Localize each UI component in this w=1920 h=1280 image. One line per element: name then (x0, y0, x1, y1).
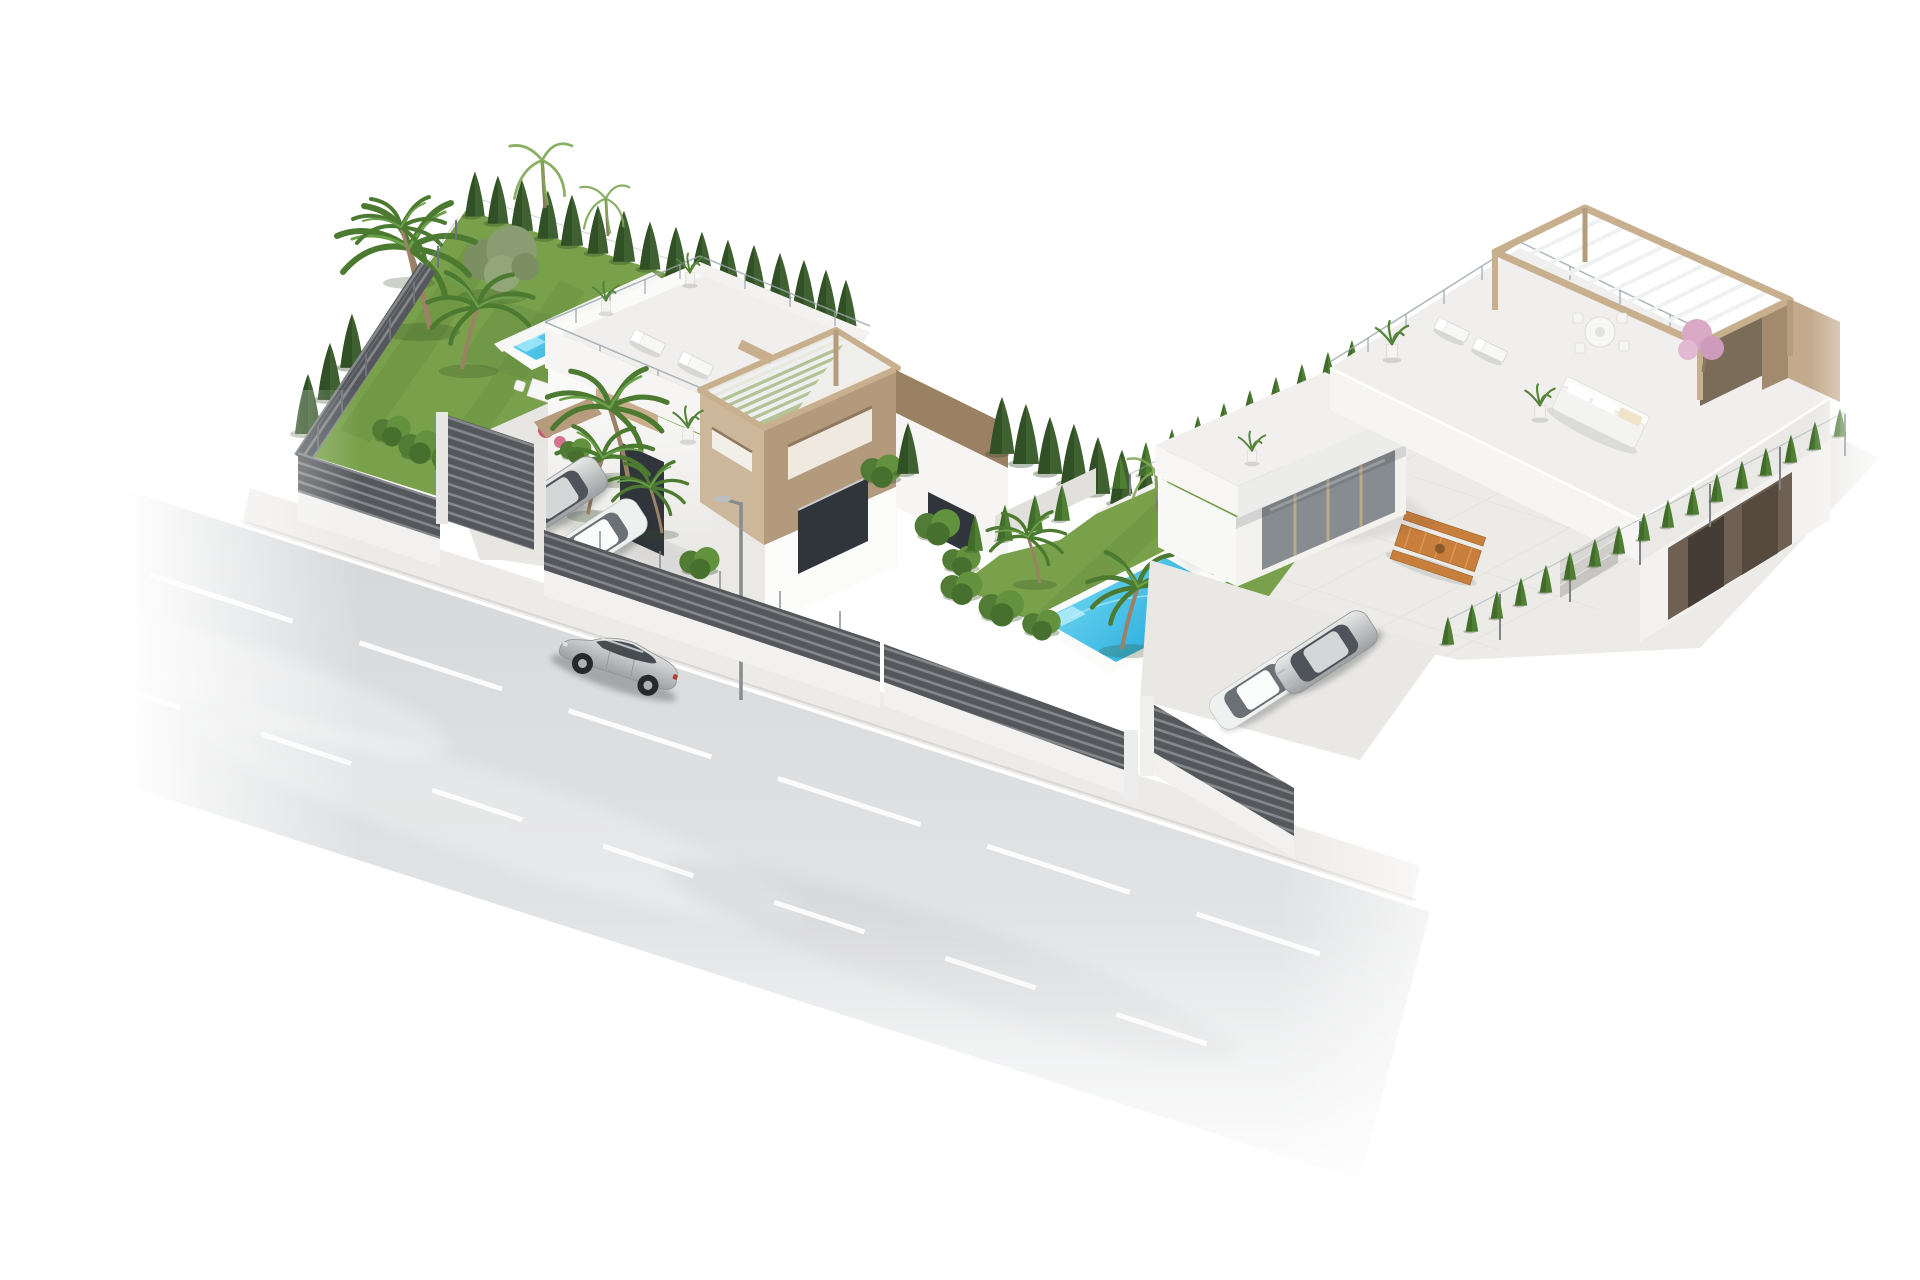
render-canvas (0, 0, 1920, 1280)
terrace-chair (1617, 313, 1627, 323)
terrace-chair (1619, 341, 1629, 351)
cypress-tree (1033, 417, 1062, 478)
cypress-tree (1008, 404, 1039, 468)
architectural-render (0, 0, 1920, 1280)
bottom-edge-fade (0, 920, 1520, 1280)
shrub (940, 571, 982, 605)
terrace-chair (1575, 343, 1585, 353)
lamp-head (715, 496, 731, 503)
gate-pillar (436, 412, 448, 524)
fence-pillar (1124, 730, 1138, 800)
table-center (1595, 327, 1605, 337)
terrace-chair (1573, 313, 1583, 323)
gate-pillar (1140, 696, 1154, 776)
far-right-fade (1810, 280, 1920, 780)
